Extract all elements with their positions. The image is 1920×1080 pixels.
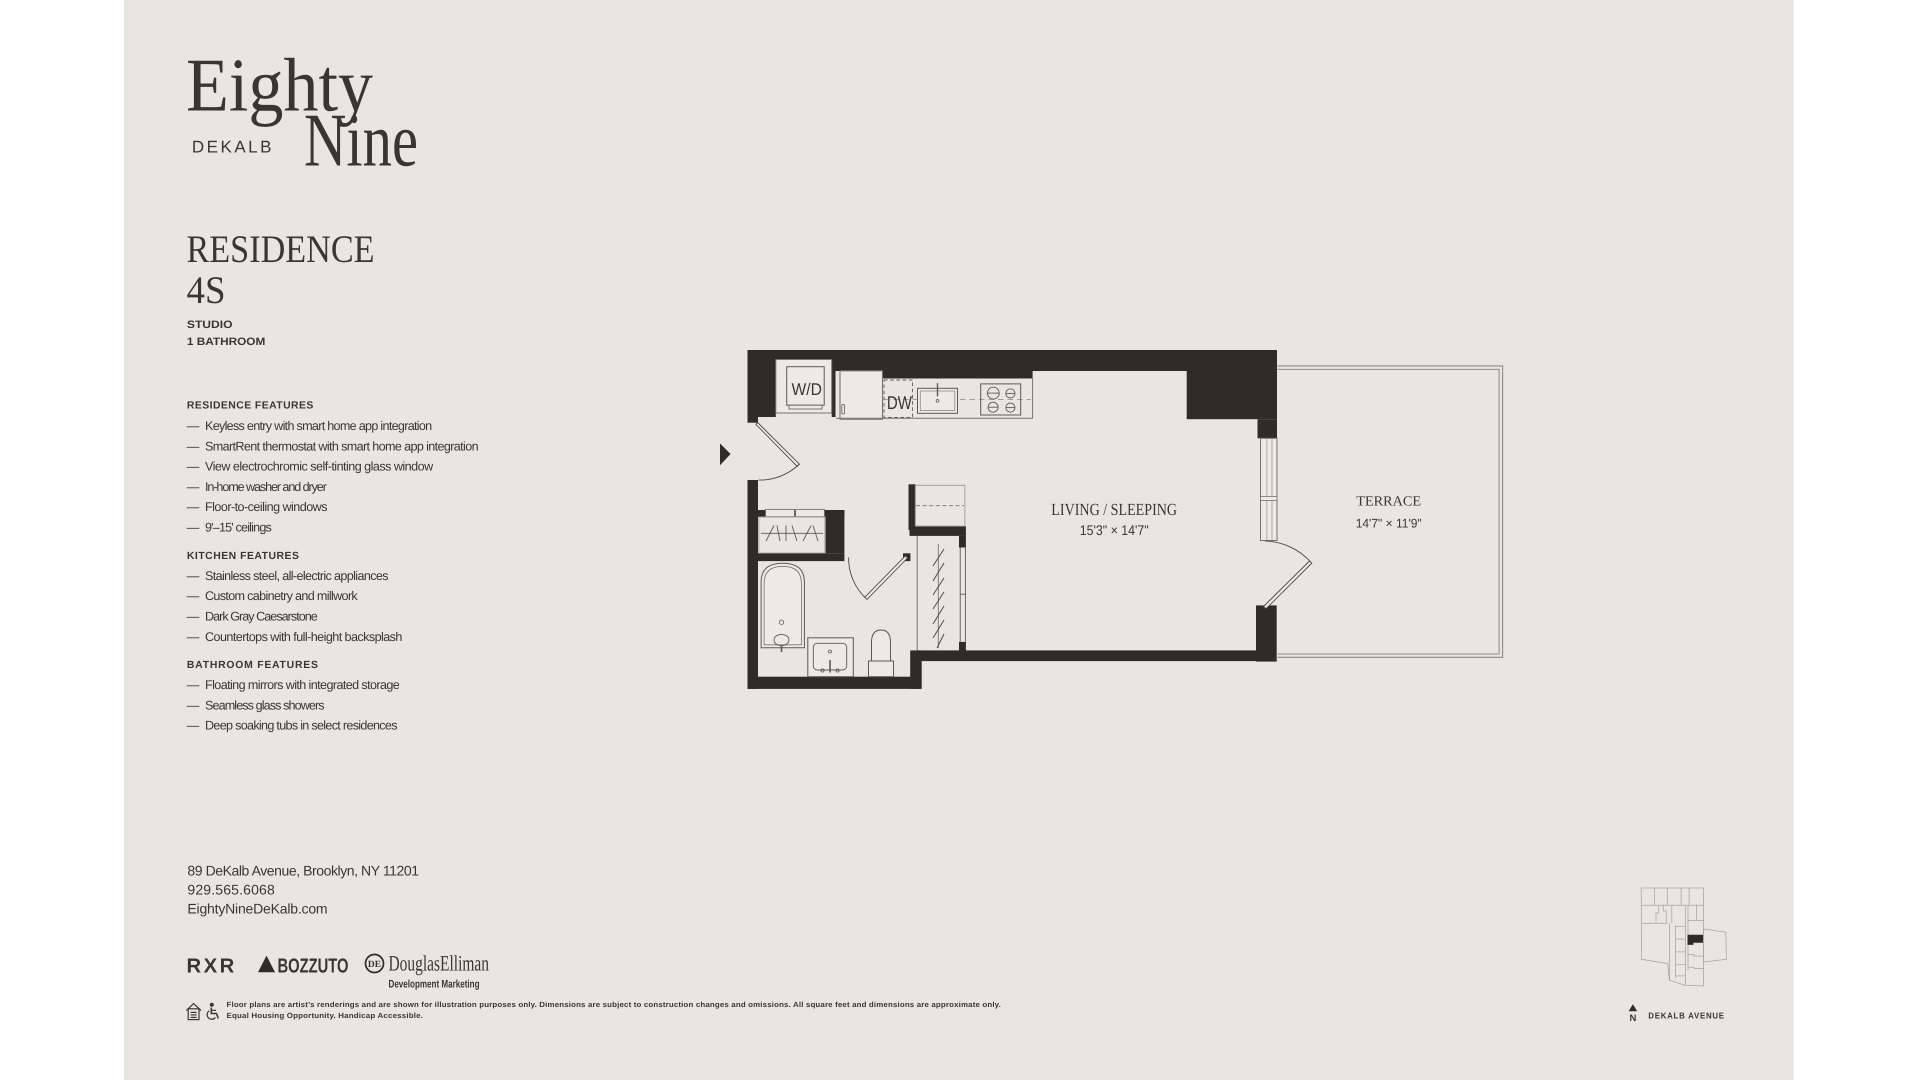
svg-text:—: — — [187, 439, 200, 453]
svg-text:—: — — [187, 500, 200, 514]
svg-text:Keyless entry with smart home: Keyless entry with smart home app integr… — [205, 419, 432, 433]
svg-text:Floor-to-ceiling windows: Floor-to-ceiling windows — [205, 500, 328, 514]
svg-text:Dark Gray Caesarstone: Dark Gray Caesarstone — [205, 610, 318, 624]
svg-text:—: — — [187, 678, 200, 692]
svg-text:—: — — [187, 521, 200, 535]
svg-text:RXR: RXR — [187, 955, 237, 977]
svg-text:Seamless glass showers: Seamless glass showers — [205, 698, 325, 712]
svg-text:EightyNineDeKalb.com: EightyNineDeKalb.com — [187, 901, 327, 917]
svg-text:14'7" × 11'9": 14'7" × 11'9" — [1356, 517, 1422, 531]
svg-text:KITCHEN FEATURES: KITCHEN FEATURES — [187, 551, 299, 562]
svg-text:1 BATHROOM: 1 BATHROOM — [187, 336, 265, 348]
svg-text:—: — — [187, 719, 200, 733]
svg-text:—: — — [187, 589, 200, 603]
svg-text:—: — — [187, 419, 200, 433]
svg-text:—: — — [187, 480, 200, 494]
svg-text:DE: DE — [368, 960, 381, 970]
svg-text:LIVING / SLEEPING: LIVING / SLEEPING — [1051, 500, 1177, 519]
svg-text:N: N — [1629, 1013, 1636, 1024]
svg-text:DW: DW — [887, 392, 912, 413]
svg-text:929.565.6068: 929.565.6068 — [187, 881, 275, 897]
svg-text:DEKALB AVENUE: DEKALB AVENUE — [1648, 1011, 1725, 1021]
svg-text:—: — — [187, 698, 200, 712]
svg-text:—: — — [187, 569, 200, 583]
svg-text:RESIDENCE: RESIDENCE — [187, 228, 375, 271]
svg-text:BATHROOM FEATURES: BATHROOM FEATURES — [187, 660, 318, 671]
svg-text:Development Marketing: Development Marketing — [389, 979, 480, 991]
svg-text:In-home washer and dryer: In-home washer and dryer — [205, 480, 327, 494]
svg-text:RESIDENCE FEATURES: RESIDENCE FEATURES — [187, 400, 313, 411]
svg-text:Deep soaking tubs in select re: Deep soaking tubs in select residences — [205, 719, 398, 733]
svg-text:TERRACE: TERRACE — [1356, 495, 1421, 510]
svg-text:DouglasElliman: DouglasElliman — [389, 951, 490, 976]
svg-text:BOZZUTO: BOZZUTO — [278, 955, 349, 977]
svg-text:Custom cabinetry and millwork: Custom cabinetry and millwork — [205, 589, 358, 603]
svg-text:Floor plans are artist’s rende: Floor plans are artist’s renderings and … — [227, 1000, 1002, 1009]
svg-text:Floating mirrors with integrat: Floating mirrors with integrated storage — [205, 678, 400, 692]
svg-text:STUDIO: STUDIO — [187, 319, 233, 331]
svg-text:89 DeKalb Avenue, Brooklyn, NY: 89 DeKalb Avenue, Brooklyn, NY 11201 — [187, 862, 419, 878]
svg-text:DEKALB: DEKALB — [192, 137, 274, 156]
svg-text:SmartRent thermostat with smar: SmartRent thermostat with smart home app… — [205, 439, 479, 453]
svg-text:15'3" × 14'7": 15'3" × 14'7" — [1080, 522, 1149, 538]
svg-text:—: — — [187, 460, 200, 474]
svg-text:W/D: W/D — [792, 380, 822, 399]
svg-text:View electrochromic self-tinti: View electrochromic self-tinting glass w… — [205, 460, 434, 474]
svg-text:4S: 4S — [187, 269, 226, 312]
svg-text:—: — — [187, 630, 200, 644]
svg-text:Countertops with full-height b: Countertops with full-height backsplash — [205, 630, 402, 644]
svg-text:9'–15' ceilings: 9'–15' ceilings — [205, 521, 272, 535]
svg-text:Equal Housing Opportunity. Han: Equal Housing Opportunity. Handicap Acce… — [227, 1011, 424, 1020]
svg-text:—: — — [187, 610, 200, 624]
svg-text:Stainless steel, all-electric: Stainless steel, all-electric appliances — [205, 569, 389, 583]
svg-text:Nine: Nine — [304, 98, 418, 182]
